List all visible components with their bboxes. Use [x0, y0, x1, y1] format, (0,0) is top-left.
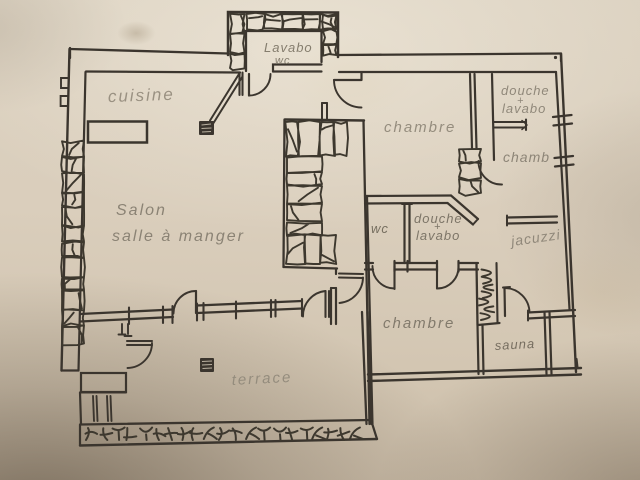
svg-text:lavabo: lavabo: [416, 228, 460, 243]
svg-text:wc: wc: [371, 221, 389, 236]
svg-text:lavabo: lavabo: [502, 101, 546, 116]
svg-text:wc: wc: [275, 55, 290, 67]
svg-text:Salon: Salon: [116, 202, 167, 219]
svg-text:jacuzzi: jacuzzi: [508, 226, 562, 249]
svg-text:sauna: sauna: [494, 336, 535, 353]
svg-text:douche: douche: [501, 83, 550, 98]
svg-text:chamb: chamb: [503, 149, 550, 165]
svg-text:salle à manger: salle à manger: [112, 228, 245, 245]
svg-text:cuisine: cuisine: [108, 85, 176, 106]
svg-text:chambre: chambre: [384, 119, 456, 136]
svg-text:Lavabo: Lavabo: [264, 40, 313, 55]
svg-text:chambre: chambre: [383, 315, 455, 332]
svg-text:terrace: terrace: [231, 369, 292, 389]
